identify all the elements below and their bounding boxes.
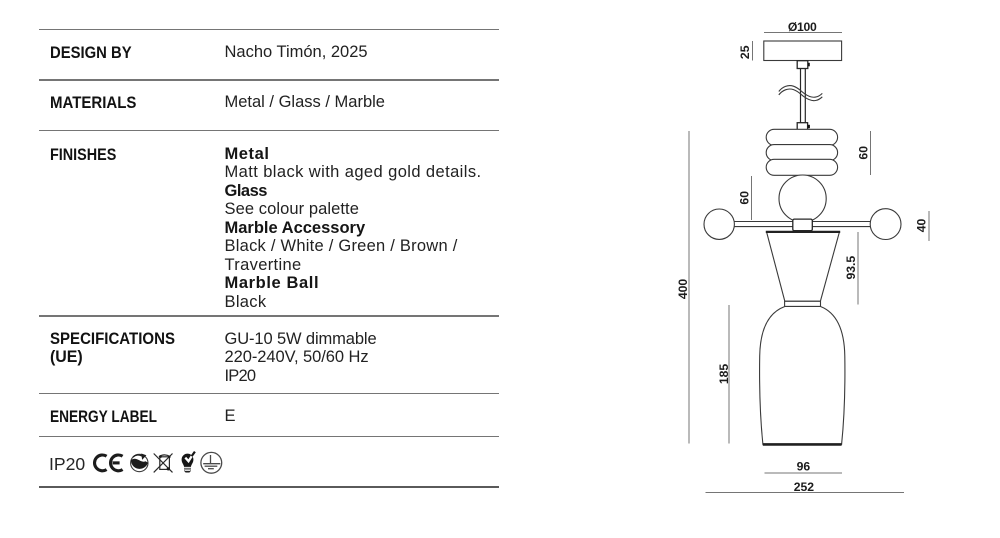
svg-text:60: 60: [856, 146, 870, 160]
svg-text:96: 96: [797, 460, 811, 474]
svg-text:25: 25: [738, 45, 752, 59]
svg-text:185: 185: [717, 364, 731, 385]
svg-text:Ø100: Ø100: [788, 20, 817, 34]
svg-text:IP20: IP20: [49, 454, 85, 474]
svg-text:93.5: 93.5: [844, 256, 858, 280]
svg-text:60: 60: [737, 191, 751, 205]
svg-text:40: 40: [915, 219, 929, 233]
svg-text:252: 252: [794, 480, 815, 494]
svg-text:400: 400: [676, 279, 690, 300]
